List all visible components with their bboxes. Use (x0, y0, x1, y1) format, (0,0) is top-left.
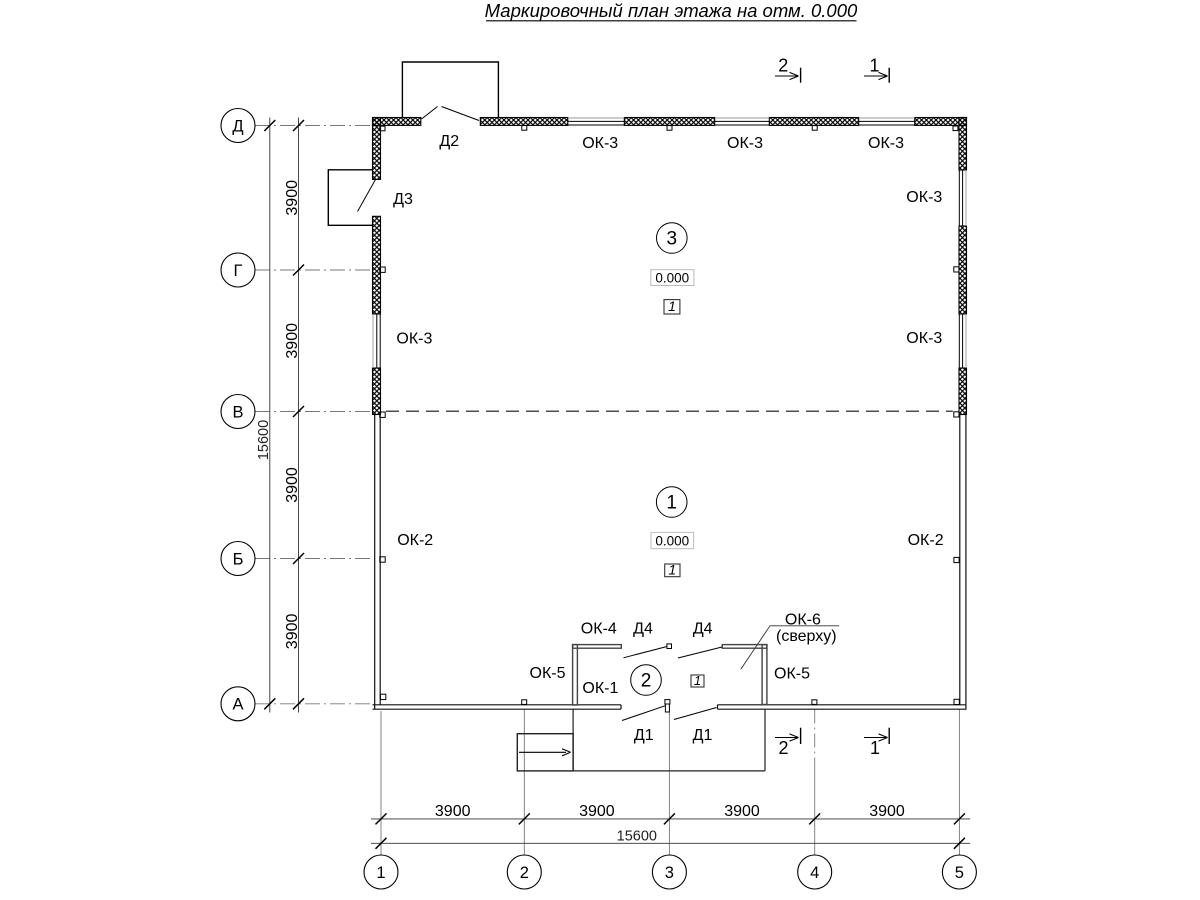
svg-text:Г: Г (234, 262, 243, 280)
svg-text:(сверху): (сверху) (776, 628, 837, 645)
svg-text:1: 1 (869, 56, 879, 76)
svg-text:Маркировочный план этажа на от: Маркировочный план этажа на отм. 0.000 (485, 0, 858, 21)
svg-text:2: 2 (520, 864, 529, 882)
svg-text:3900: 3900 (579, 803, 615, 820)
svg-text:15600: 15600 (256, 420, 272, 460)
svg-text:3900: 3900 (284, 467, 301, 503)
svg-text:3: 3 (665, 864, 674, 882)
svg-text:3900: 3900 (724, 803, 760, 820)
svg-text:ОК-2: ОК-2 (397, 532, 433, 549)
svg-text:0.000: 0.000 (655, 271, 689, 286)
svg-text:Д4: Д4 (633, 620, 653, 637)
svg-text:1: 1 (376, 864, 385, 882)
svg-text:ОК-3: ОК-3 (396, 330, 432, 347)
svg-text:3900: 3900 (284, 614, 301, 650)
svg-text:Д3: Д3 (393, 191, 413, 208)
svg-text:2: 2 (778, 738, 788, 758)
svg-text:Б: Б (233, 550, 244, 568)
svg-text:ОК-5: ОК-5 (774, 666, 810, 683)
svg-text:ОК-3: ОК-3 (727, 135, 763, 152)
svg-text:3900: 3900 (435, 803, 471, 820)
svg-text:0.000: 0.000 (655, 534, 689, 549)
svg-text:3900: 3900 (284, 180, 301, 216)
svg-text:Д2: Д2 (439, 133, 459, 150)
svg-text:4: 4 (810, 864, 819, 882)
svg-text:1: 1 (694, 673, 701, 688)
svg-text:2: 2 (641, 671, 652, 692)
svg-text:Д1: Д1 (634, 727, 654, 744)
svg-text:15600: 15600 (617, 829, 657, 845)
svg-text:ОК-3: ОК-3 (868, 135, 904, 152)
svg-text:Д1: Д1 (693, 727, 713, 744)
svg-text:В: В (232, 403, 243, 421)
svg-text:ОК-3: ОК-3 (906, 189, 942, 206)
svg-text:ОК-4: ОК-4 (581, 620, 617, 637)
svg-text:3: 3 (667, 229, 678, 250)
svg-text:ОК-3: ОК-3 (906, 330, 942, 347)
svg-text:А: А (232, 696, 243, 714)
svg-text:3900: 3900 (869, 803, 905, 820)
svg-text:Д4: Д4 (693, 620, 713, 637)
svg-text:ОК-5: ОК-5 (530, 665, 566, 682)
svg-text:ОК-1: ОК-1 (582, 680, 618, 697)
svg-text:1: 1 (668, 298, 676, 314)
svg-text:ОК-3: ОК-3 (582, 135, 618, 152)
svg-text:Д: Д (232, 117, 243, 135)
svg-text:ОК-2: ОК-2 (908, 532, 944, 549)
svg-text:1: 1 (668, 562, 676, 578)
svg-text:5: 5 (955, 864, 964, 882)
svg-text:2: 2 (778, 56, 788, 76)
svg-text:3900: 3900 (284, 323, 301, 359)
svg-text:1: 1 (666, 493, 677, 514)
